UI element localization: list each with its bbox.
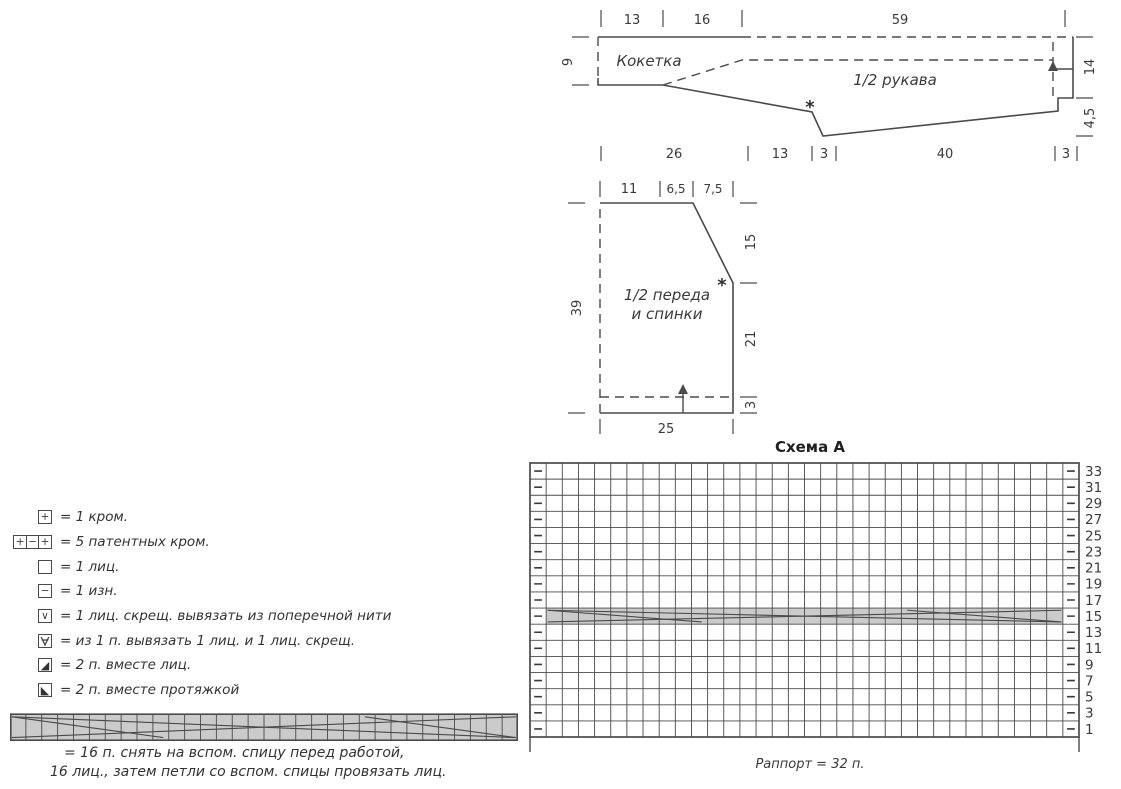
knit-tbl-symbol-icon: ∨	[0, 609, 52, 623]
increase-symbol-icon	[0, 634, 52, 648]
chart-row-number: 11	[1085, 641, 1102, 657]
chart-row-number: 27	[1085, 512, 1102, 528]
legend-item: ∨= 1 лиц. скрещ. вывязать из поперечной …	[0, 604, 530, 629]
front-back-bottom-width: 25	[658, 422, 675, 437]
knitting-pattern-page: 13 16 59 9 14 4,5 26 13 3 40 3 Кокетка 1…	[0, 0, 1121, 789]
front-back-right-height-1: 15	[744, 234, 759, 251]
sleeve-bottom-width-4: 40	[937, 147, 954, 162]
front-back-right-height-2: 21	[744, 331, 759, 348]
legend-item-text: = 1 лиц. скрещ. вывязать из поперечной н…	[60, 608, 391, 624]
front-back-direction-arrow	[678, 384, 688, 413]
sleeve-bottom-width-3: 3	[820, 147, 828, 162]
front-back-schematic: 11 6,5 7,5 39 15 21 3 25 1/2 переда и сп…	[550, 175, 800, 443]
patent-kromka-symbol-icon: +−+	[0, 535, 52, 549]
front-back-star-marker: *	[717, 275, 727, 296]
chart-row-number: 13	[1085, 625, 1102, 641]
chart-row-number: 29	[1085, 496, 1102, 512]
chart-row-number: 17	[1085, 593, 1102, 609]
legend-item: +−+= 5 патентных кром.	[0, 530, 530, 555]
legend-item: ◣= 2 п. вместе протяжкой	[0, 678, 530, 703]
chart-row-number: 3	[1085, 706, 1094, 722]
sleeve-star-marker: *	[805, 97, 815, 118]
legend: += 1 кром.+−+= 5 патентных кром.= 1 лиц.…	[0, 505, 530, 703]
chart-frame-extensions	[530, 737, 1079, 752]
sleeve-top-width-3: 59	[892, 13, 909, 28]
sleeve-top-width-1: 13	[624, 13, 641, 28]
legend-item: ◢= 2 п. вместе лиц.	[0, 653, 530, 678]
front-back-left-height: 39	[570, 300, 585, 317]
legend-item-text: = 1 кром.	[60, 509, 128, 525]
legend-item-text: = 1 лиц.	[60, 559, 119, 575]
front-back-top-width-2: 6,5	[666, 182, 685, 196]
sleeve-bottom-width-1: 26	[666, 147, 683, 162]
legend-item-text: = 2 п. вместе протяжкой	[60, 682, 239, 698]
chart-row-number: 5	[1085, 690, 1094, 706]
legend-item-text: = 1 изн.	[60, 583, 118, 599]
chart-caption: Раппорт = 32 п.	[530, 757, 1090, 772]
front-back-part-label-line2: и спинки	[632, 305, 703, 323]
cable-note-line2: 16 лиц., затем петли со вспом. спицы про…	[50, 764, 446, 780]
chart-row-number: 21	[1085, 561, 1102, 577]
chart-row-number: 1	[1085, 722, 1094, 738]
chart-row-number: 33	[1085, 464, 1102, 480]
sleeve-bottom-width-5: 3	[1062, 147, 1070, 162]
cable-strip-symbol	[10, 713, 518, 743]
chart-row-number: 25	[1085, 528, 1102, 544]
chart-title: Схема A	[530, 438, 1090, 456]
chart-row-number: 23	[1085, 544, 1102, 560]
legend-item-text: = из 1 п. вывязать 1 лиц. и 1 лиц. скрещ…	[60, 633, 355, 649]
sleeve-top-width-2: 16	[694, 13, 711, 28]
knit-symbol-icon	[0, 560, 52, 574]
sleeve-right-height-2: 4,5	[1083, 108, 1098, 129]
sleeve-direction-arrow	[1048, 61, 1073, 71]
chart-row-number: 19	[1085, 577, 1102, 593]
cable-note-line1: = 16 п. снять на вспом. спицу перед рабо…	[64, 745, 404, 761]
legend-item-text: = 5 патентных кром.	[60, 534, 210, 550]
purl-symbol-icon: −	[0, 584, 52, 598]
legend-item-text: = 2 п. вместе лиц.	[60, 657, 191, 673]
sleeve-bottom-width-2: 13	[772, 147, 789, 162]
front-back-right-height-3: 3	[744, 401, 759, 409]
k2tog-symbol-icon: ◢	[0, 658, 52, 672]
sleeve-yoke-label: Кокетка	[616, 52, 681, 70]
legend-items: += 1 кром.+−+= 5 патентных кром.= 1 лиц.…	[0, 505, 530, 703]
chart-row-number: 15	[1085, 609, 1102, 625]
chart-row-number: 9	[1085, 657, 1094, 673]
legend-item: = 1 лиц.	[0, 554, 530, 579]
legend-item: −= 1 изн.	[0, 579, 530, 604]
legend-item: += 1 кром.	[0, 505, 530, 530]
front-back-part-label-line1: 1/2 переда	[624, 286, 710, 304]
front-back-top-width-3: 7,5	[703, 182, 722, 196]
ssk-symbol-icon: ◣	[0, 683, 52, 697]
front-back-top-width-1: 11	[621, 182, 638, 197]
knitting-chart: 33312927252321191715131197531	[520, 455, 1121, 755]
chart-grid-lines	[530, 463, 1079, 737]
chart-row-number: 7	[1085, 673, 1094, 689]
sleeve-right-height-1: 14	[1083, 59, 1098, 76]
sleeve-schematic: 13 16 59 9 14 4,5 26 13 3 40 3 Кокетка 1…	[555, 0, 1121, 178]
sleeve-part-label: 1/2 рукава	[853, 71, 937, 89]
sleeve-left-height: 9	[561, 58, 576, 66]
legend-item: = из 1 п. вывязать 1 лиц. и 1 лиц. скрещ…	[0, 628, 530, 653]
chart-row-number: 31	[1085, 480, 1102, 496]
kromka-symbol-icon: +	[0, 510, 52, 524]
